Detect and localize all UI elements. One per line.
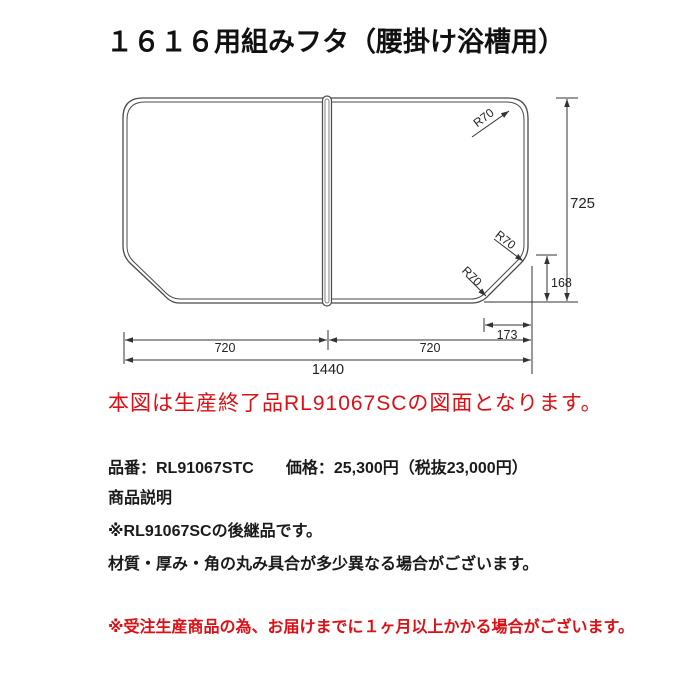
- description-header: 商品説明: [108, 484, 172, 508]
- dim-label-173: 173: [497, 328, 518, 342]
- dim-label-r70-chamfer-bottom: R70: [459, 263, 485, 289]
- dim-label-r70-top-right: R70: [471, 105, 497, 130]
- dim-label-725: 725: [570, 195, 595, 212]
- material-note: 材質・厚み・角の丸み具合が多少異なる場合がございます。: [108, 550, 538, 574]
- product-code-price-line: 品番：RL91067STC 価格：25,300円（税抜23,000円）: [108, 454, 528, 478]
- dim-label-720-right: 720: [420, 341, 441, 355]
- dim-label-1440: 1440: [312, 362, 344, 378]
- dim-label-168: 168: [551, 276, 572, 290]
- discontinued-product-note: 本図は生産終了品RL91067SCの図面となります。: [108, 387, 603, 417]
- panel-divider: [323, 96, 332, 306]
- dim-label-r70-chamfer-top: R70: [492, 228, 518, 253]
- successor-note: ※RL91067SCの後継品です。: [108, 517, 322, 541]
- product-page: １６１６用組みフタ（腰掛け浴槽用） 7: [0, 0, 700, 700]
- dim-label-720-left: 720: [215, 341, 236, 355]
- bathtub-lid-diagram: 725 168 173 720 720 1440 R70 R70 R70: [0, 0, 700, 400]
- made-to-order-warning: ※受注生産商品の為、お届けまでに１ヶ月以上かかる場合がございます。: [108, 613, 634, 637]
